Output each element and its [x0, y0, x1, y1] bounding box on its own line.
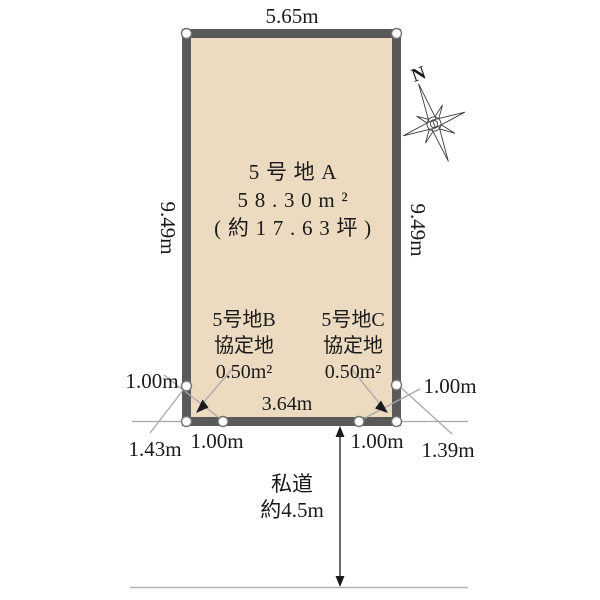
corner-marker	[392, 29, 402, 39]
left-bottom-measure-label: 1.00m	[177, 430, 257, 452]
corner-lot-c-info: 5号地C 協定地 0.50m²	[298, 307, 408, 385]
corner-lot-c-area: 0.50m²	[298, 359, 408, 385]
road-info: 私道 約4.5m	[232, 471, 352, 523]
road-name: 私道	[232, 471, 352, 497]
corner-lot-c-name: 5号地C	[298, 307, 408, 333]
corner-lot-b-category: 協定地	[189, 333, 299, 359]
main-lot-info: 5号地A 58.30m² (約17.63坪)	[196, 158, 396, 242]
main-lot-name: 5号地A	[196, 158, 396, 186]
corner-lot-c-category: 協定地	[298, 333, 408, 359]
right-height-label: 9.49m	[407, 190, 429, 270]
right-diagonal-measure-label: 1.39m	[408, 439, 488, 461]
edge-marker	[218, 417, 228, 427]
corner-lot-b-name: 5号地B	[189, 307, 299, 333]
corner-lot-b-info: 5号地B 協定地 0.50m²	[189, 307, 299, 385]
top-width-label: 5.65m	[252, 5, 332, 27]
edge-marker	[354, 417, 364, 427]
corner-lot-b-area: 0.50m²	[189, 359, 299, 385]
main-lot-tsubo: (約17.63坪)	[196, 214, 396, 242]
compass-rose-icon	[388, 72, 479, 173]
corner-marker	[182, 417, 192, 427]
left-edge-measure-label: 1.00m	[112, 370, 192, 392]
right-bottom-measure-label: 1.00m	[337, 430, 417, 452]
main-lot-area: 58.30m²	[196, 186, 396, 214]
left-height-label: 9.49m	[157, 188, 179, 268]
corner-marker	[392, 417, 402, 427]
road-width-label: 約4.5m	[232, 497, 352, 523]
right-edge-measure-label: 1.00m	[410, 375, 490, 397]
corner-marker	[182, 29, 192, 39]
plot-diagram: N 5.65m 9.49m 9.49m 3.64m 5号地A 58.30m² (…	[0, 0, 600, 600]
bottom-width-label: 3.64m	[247, 393, 327, 415]
